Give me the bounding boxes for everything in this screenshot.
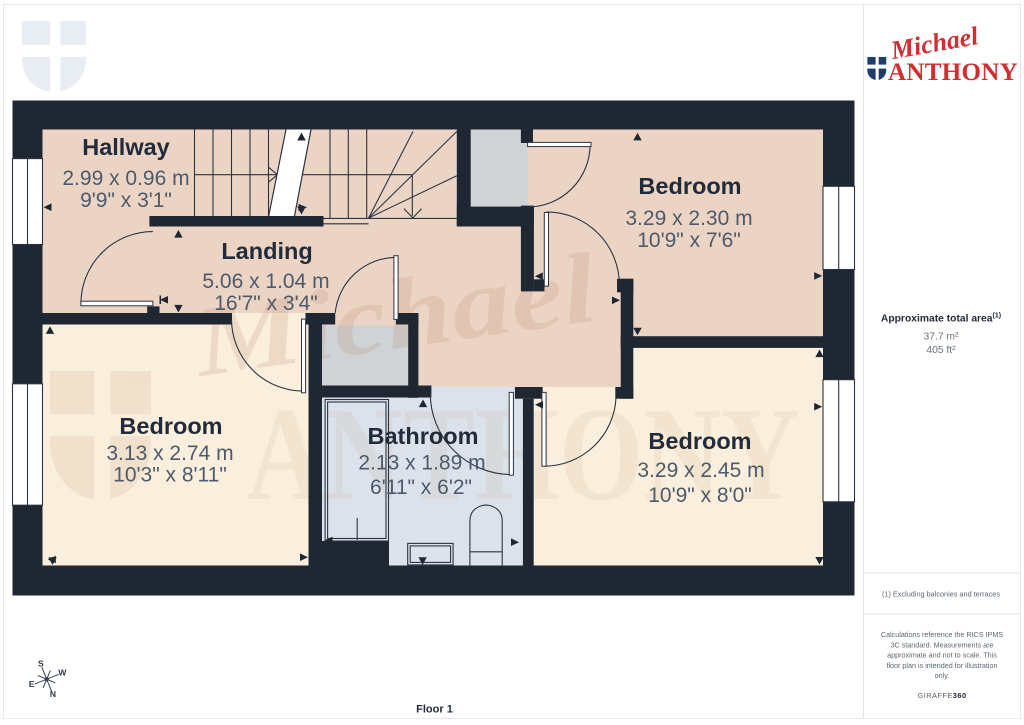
svg-text:S: S <box>38 659 44 669</box>
svg-text:Landing: Landing <box>221 238 312 264</box>
svg-text:3.13 x 2.74 m: 3.13 x 2.74 m <box>106 442 233 465</box>
svg-text:Hallway: Hallway <box>82 134 170 160</box>
svg-text:only.: only. <box>935 671 950 680</box>
svg-text:Bedroom: Bedroom <box>648 428 751 454</box>
svg-text:405 ft²: 405 ft² <box>926 345 956 356</box>
svg-text:2.99 x 0.96 m: 2.99 x 0.96 m <box>62 167 189 190</box>
svg-text:Floor 1: Floor 1 <box>416 704 453 716</box>
svg-text:10'3" x 8'11": 10'3" x 8'11" <box>113 464 227 487</box>
svg-text:Bathroom: Bathroom <box>368 423 479 449</box>
svg-text:Calculations reference the RIC: Calculations reference the RICS IPMS <box>881 630 1003 639</box>
svg-text:approximate and not to scale.: approximate and not to scale. This <box>887 651 997 660</box>
svg-text:Approximate total area(1): Approximate total area(1) <box>881 313 1001 325</box>
svg-text:GIRAFFE360: GIRAFFE360 <box>917 691 966 700</box>
svg-text:Bedroom: Bedroom <box>638 173 741 199</box>
svg-text:16'7" x 3'4": 16'7" x 3'4" <box>214 292 318 315</box>
svg-text:floor plan is intended for ill: floor plan is intended for illustration <box>886 661 997 670</box>
svg-text:W: W <box>58 668 67 678</box>
svg-text:10'9" x 8'0": 10'9" x 8'0" <box>648 484 752 507</box>
svg-text:(1) Excluding balconies and te: (1) Excluding balconies and terraces <box>882 590 1000 599</box>
svg-text:3.29 x 2.30 m: 3.29 x 2.30 m <box>625 207 752 230</box>
svg-text:5.06 x 1.04 m: 5.06 x 1.04 m <box>202 270 329 293</box>
svg-text:2.13 x 1.89 m: 2.13 x 1.89 m <box>358 452 485 475</box>
svg-text:E: E <box>29 679 35 689</box>
svg-text:3.29 x 2.45 m: 3.29 x 2.45 m <box>637 459 764 482</box>
svg-text:3C standard. Measurements are: 3C standard. Measurements are <box>890 640 993 649</box>
svg-text:N: N <box>50 689 56 699</box>
svg-text:ANTHONY: ANTHONY <box>888 59 1018 86</box>
svg-text:9'9" x 3'1": 9'9" x 3'1" <box>80 189 172 212</box>
svg-text:6'11" x 6'2": 6'11" x 6'2" <box>370 476 472 499</box>
svg-text:10'9" x 7'6": 10'9" x 7'6" <box>637 229 741 252</box>
svg-text:37.7 m²: 37.7 m² <box>924 332 959 343</box>
svg-text:Bedroom: Bedroom <box>119 413 222 439</box>
